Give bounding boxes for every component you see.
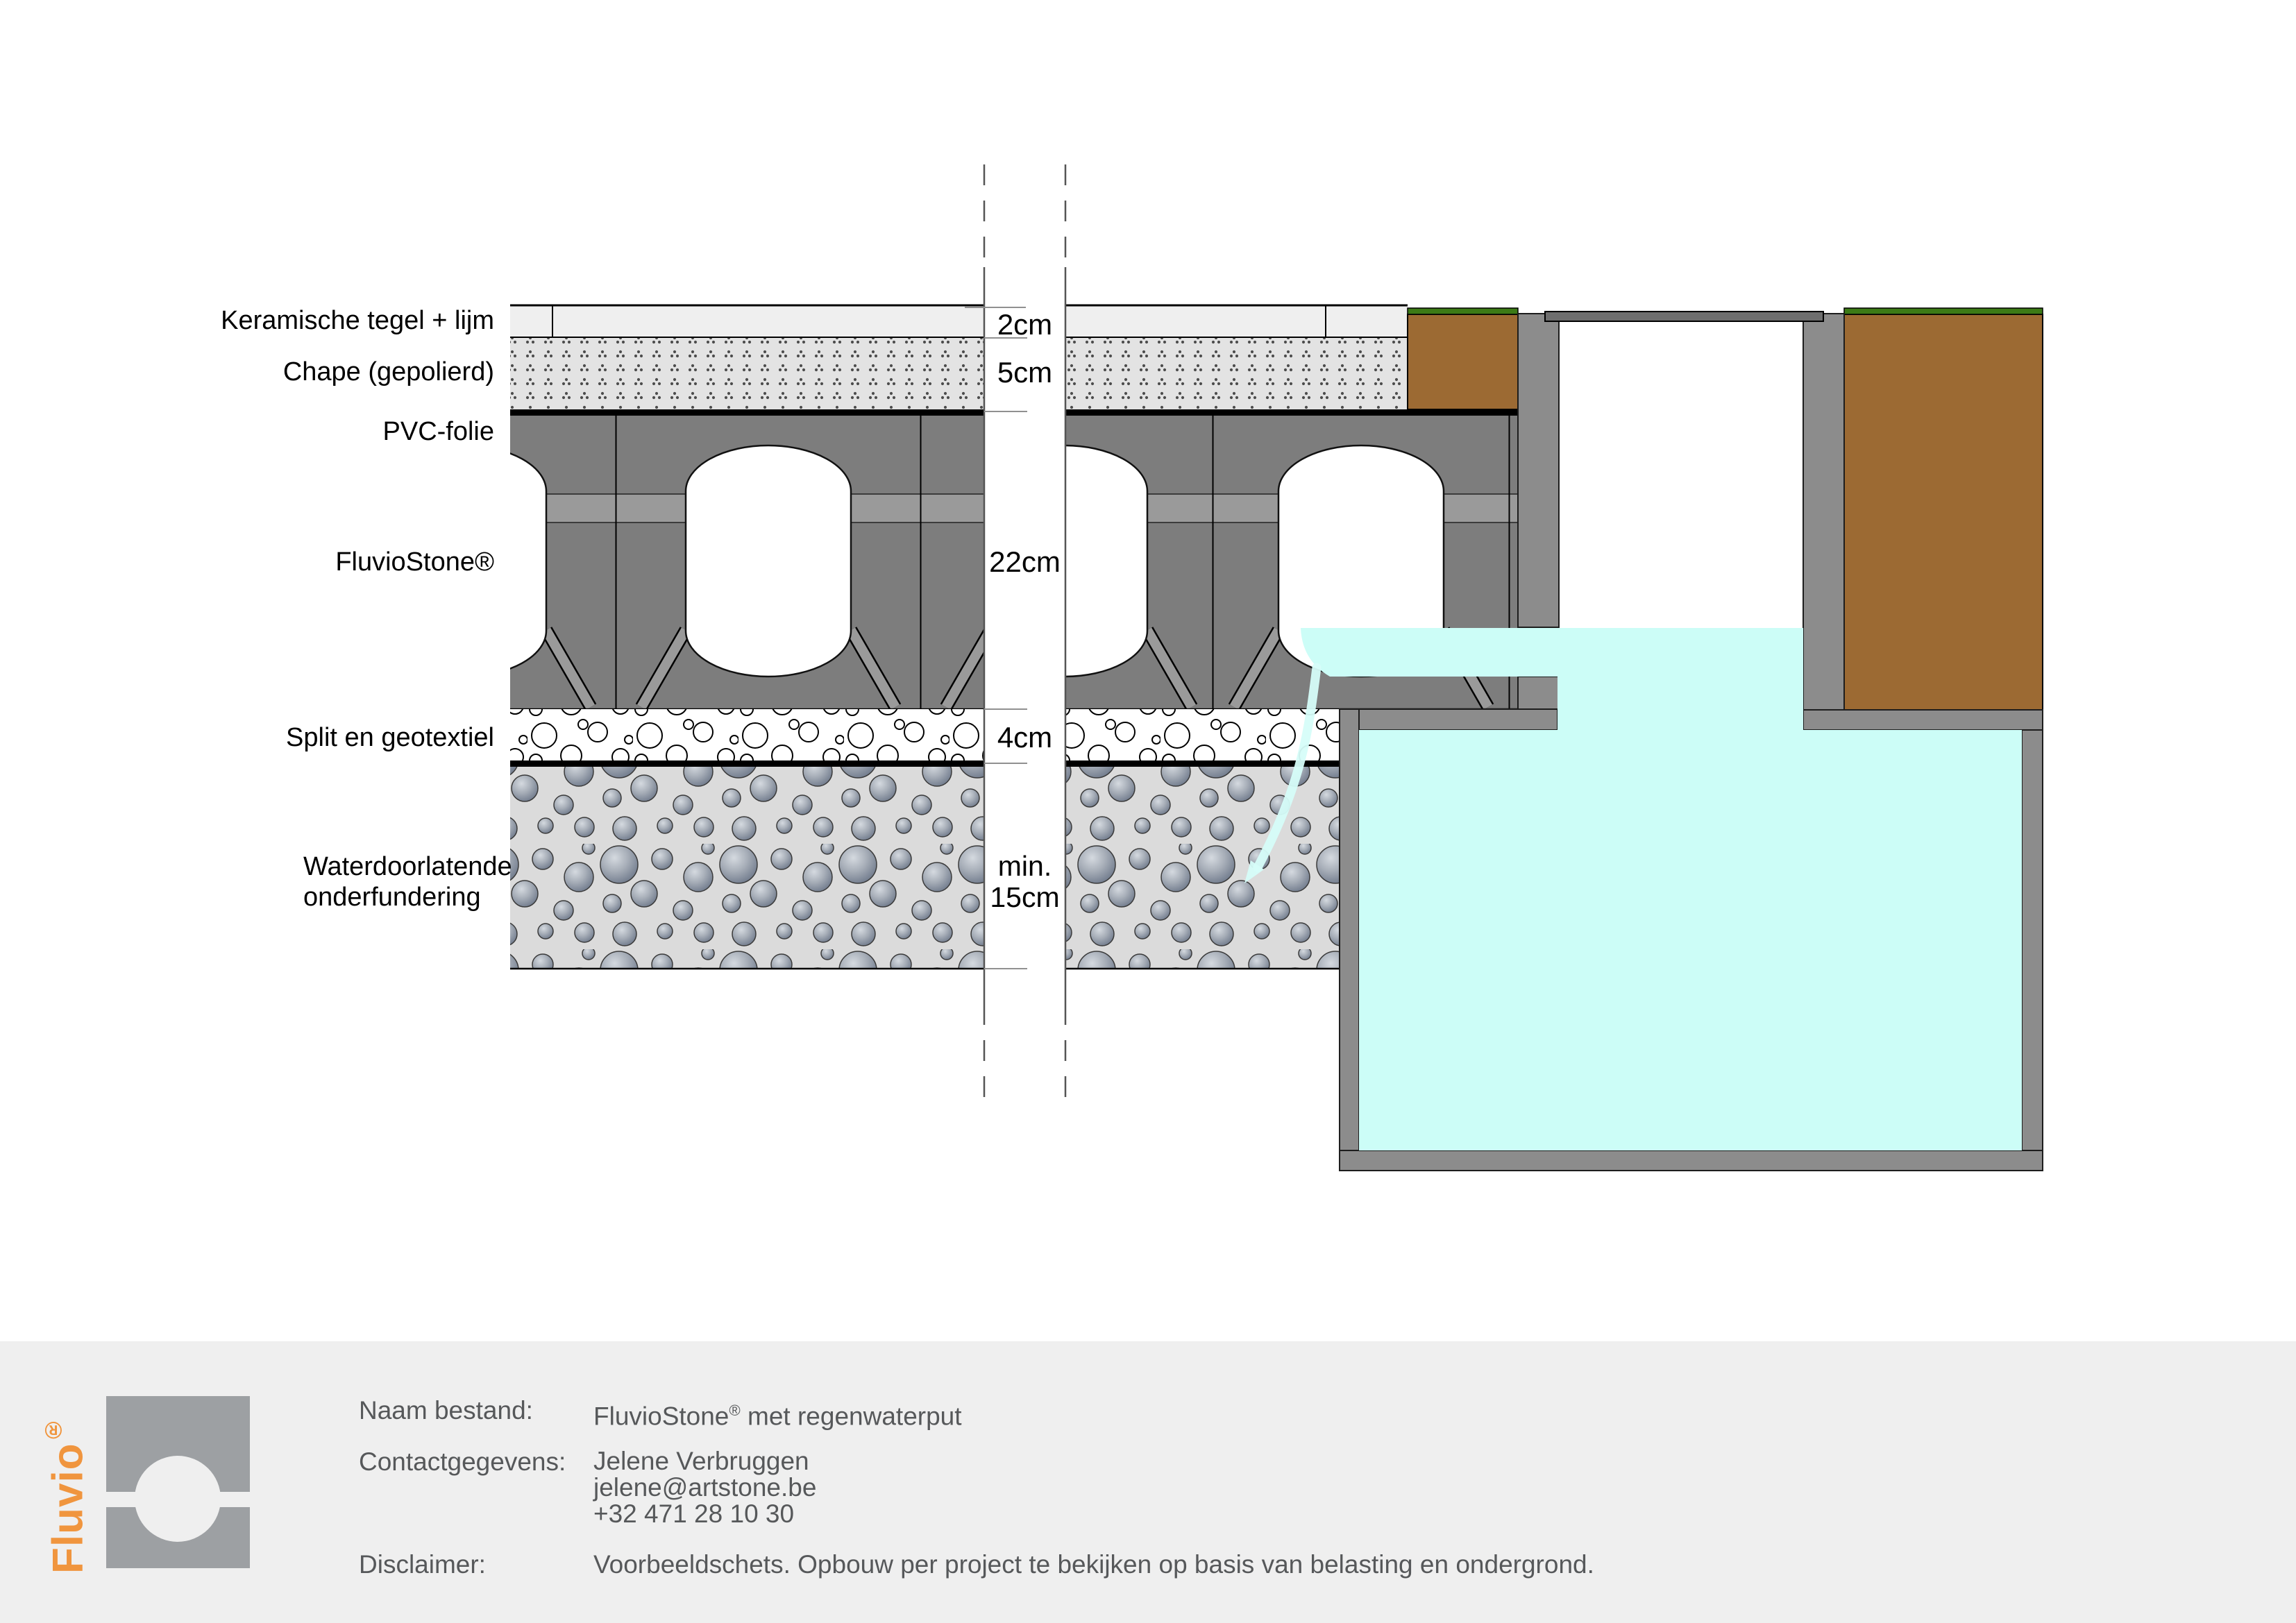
contact-name: Jelene Verbruggen xyxy=(593,1448,816,1475)
tank-wall-right xyxy=(2022,730,2043,1171)
dim-tile: 2cm xyxy=(981,308,1068,341)
label-pvc: PVC-folie xyxy=(383,416,495,447)
soil-block-left xyxy=(1408,314,1518,409)
label-subbase-line2: onderfundering xyxy=(303,882,512,912)
dim-subbase-cm: 15cm xyxy=(981,882,1068,913)
label-split: Split en geotextiel xyxy=(286,722,494,753)
layer-subbase xyxy=(510,767,984,969)
grass-strip-left xyxy=(1408,308,1518,314)
tank-bottom xyxy=(1340,1150,2043,1171)
dim-subbase-min: min. xyxy=(981,851,1068,882)
fluvio-brand-text: Fluvio® xyxy=(40,1386,93,1574)
tank-wall-left xyxy=(1340,709,1359,1171)
dim-subbase: min. 15cm xyxy=(981,851,1068,913)
label-ceramic-tile: Keramische tegel + lijm xyxy=(221,305,494,336)
layer-split xyxy=(510,709,984,760)
shaft-cover-lid xyxy=(1545,312,1823,321)
tank-slab-left xyxy=(1359,709,1558,730)
dim-stone: 22cm xyxy=(981,545,1068,579)
footer-value-contact: Jelene Verbruggen jelene@artstone.be +32… xyxy=(593,1448,816,1527)
label-subbase-line1: Waterdoorlatende xyxy=(303,851,512,882)
layer-pvc-foil-right xyxy=(1065,409,1518,416)
label-fluviostone: FluvioStone® xyxy=(335,547,494,577)
technical-drawing xyxy=(0,0,2296,1623)
break-lines xyxy=(984,164,1065,1105)
dim-chape: 5cm xyxy=(981,356,1068,389)
footer-value-filename: FluvioStone® met regenwaterput xyxy=(593,1397,962,1430)
layer-geotextile xyxy=(510,760,984,767)
shaft-wall-right xyxy=(1803,314,1844,710)
filename-registered-mark: ® xyxy=(729,1402,740,1419)
footer-label-filename: Naam bestand: xyxy=(359,1397,533,1425)
footer-value-disclaimer: Voorbeeldschets. Opbouw per project te b… xyxy=(593,1551,1594,1579)
label-subbase: Waterdoorlatende onderfundering xyxy=(303,851,512,912)
label-chape: Chape (gepolierd) xyxy=(283,357,494,387)
shaft-wall-left-upper xyxy=(1518,314,1559,627)
page: Keramische tegel + lijm Chape (gepolierd… xyxy=(0,0,2296,1623)
soil-block-right xyxy=(1844,314,2043,710)
grass-strip-right xyxy=(1844,308,2043,314)
layer-ceramic-tile xyxy=(510,305,984,338)
layer-ceramic-tile-right xyxy=(1065,305,1408,338)
contact-phone: +32 471 28 10 30 xyxy=(593,1501,816,1527)
tank-shoulder-right xyxy=(1803,710,2043,730)
contact-email: jelene@artstone.be xyxy=(593,1475,816,1501)
footer-label-contact: Contactgegevens: xyxy=(359,1448,566,1476)
dim-split: 4cm xyxy=(981,721,1068,754)
layer-pvc-foil xyxy=(510,409,984,416)
brand-registered-mark: ® xyxy=(40,1416,67,1443)
fluvio-logo-mark xyxy=(106,1396,250,1568)
layer-subbase-right xyxy=(1065,767,1340,969)
footer-label-disclaimer: Disclaimer: xyxy=(359,1551,486,1579)
